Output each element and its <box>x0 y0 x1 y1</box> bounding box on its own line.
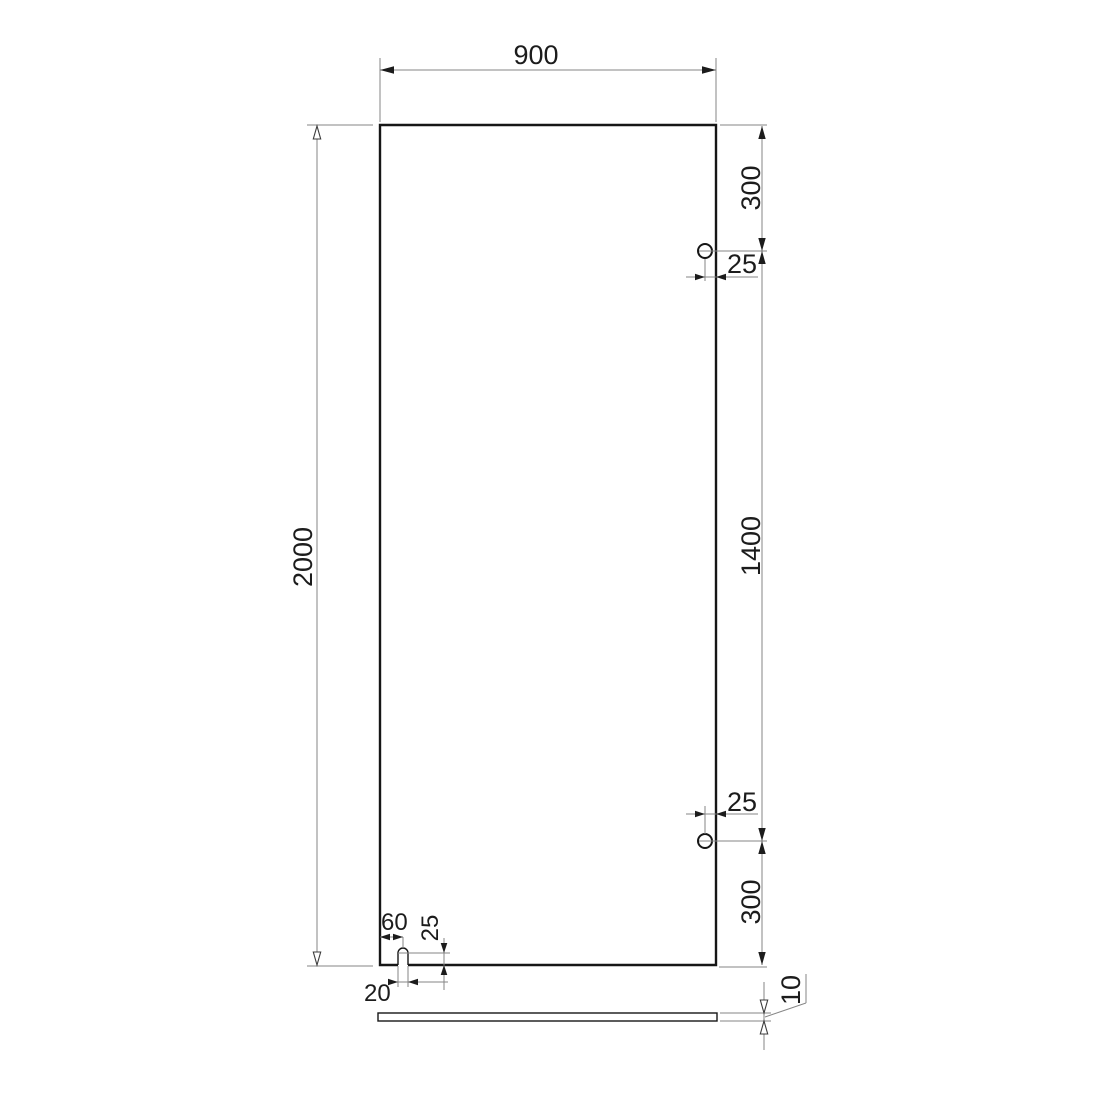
bottom-slot-cutout <box>398 948 408 965</box>
dimension-top-hole-inset: 25 <box>686 249 758 281</box>
dimension-slot-width: 20 <box>364 966 448 1007</box>
dim-hole-bottom-offset-label: 300 <box>736 879 766 924</box>
arrowhead-left <box>380 66 394 73</box>
arrowhead <box>758 841 765 854</box>
arrowhead <box>441 943 448 953</box>
dimension-panel-width: 900 <box>380 40 716 122</box>
dimension-panel-height: 2000 <box>288 125 373 966</box>
arrowhead <box>758 126 765 139</box>
arrowhead <box>441 965 448 975</box>
panel-front-view <box>380 125 716 965</box>
arrowhead <box>408 979 418 986</box>
arrowhead <box>716 274 726 281</box>
dim-panel-width-label: 900 <box>513 40 558 70</box>
arrowhead-bottom <box>313 952 320 965</box>
side-view-outline <box>378 1013 717 1021</box>
dim-slot-width-label: 20 <box>364 980 391 1007</box>
arrowhead-bottom <box>760 1021 767 1034</box>
arrowhead <box>716 811 726 818</box>
dim-hole-bottom-inset-label: 25 <box>727 787 757 817</box>
dim-hole-top-inset-label: 25 <box>727 249 757 279</box>
dim-thickness-label: 10 <box>776 975 806 1005</box>
arrowhead <box>758 251 765 264</box>
drawing-sheet: 900 2000 300 1400 300 <box>0 0 1100 1100</box>
dim-hole-top-offset-label: 300 <box>736 165 766 210</box>
dim-hole-spacing-label: 1400 <box>736 516 766 576</box>
panel-side-view: 10 <box>378 974 806 1050</box>
dimension-bottom-hole-inset: 25 <box>686 787 758 834</box>
arrowhead-right <box>702 66 716 73</box>
arrowhead-top <box>760 1000 767 1013</box>
dim-slot-center-height-label: 25 <box>417 915 444 942</box>
dim-slot-offset-label: 60 <box>381 909 408 936</box>
arrowhead <box>758 238 765 251</box>
dim-panel-height-label: 2000 <box>288 527 318 587</box>
arrowhead <box>758 952 765 965</box>
technical-drawing-canvas: 900 2000 300 1400 300 <box>0 0 1100 1100</box>
arrowhead-top <box>313 126 320 139</box>
panel-outline <box>380 125 716 965</box>
arrowhead <box>695 811 705 818</box>
dimension-slot-offset: 60 <box>380 909 408 948</box>
arrowhead <box>758 828 765 841</box>
arrowhead <box>695 274 705 281</box>
